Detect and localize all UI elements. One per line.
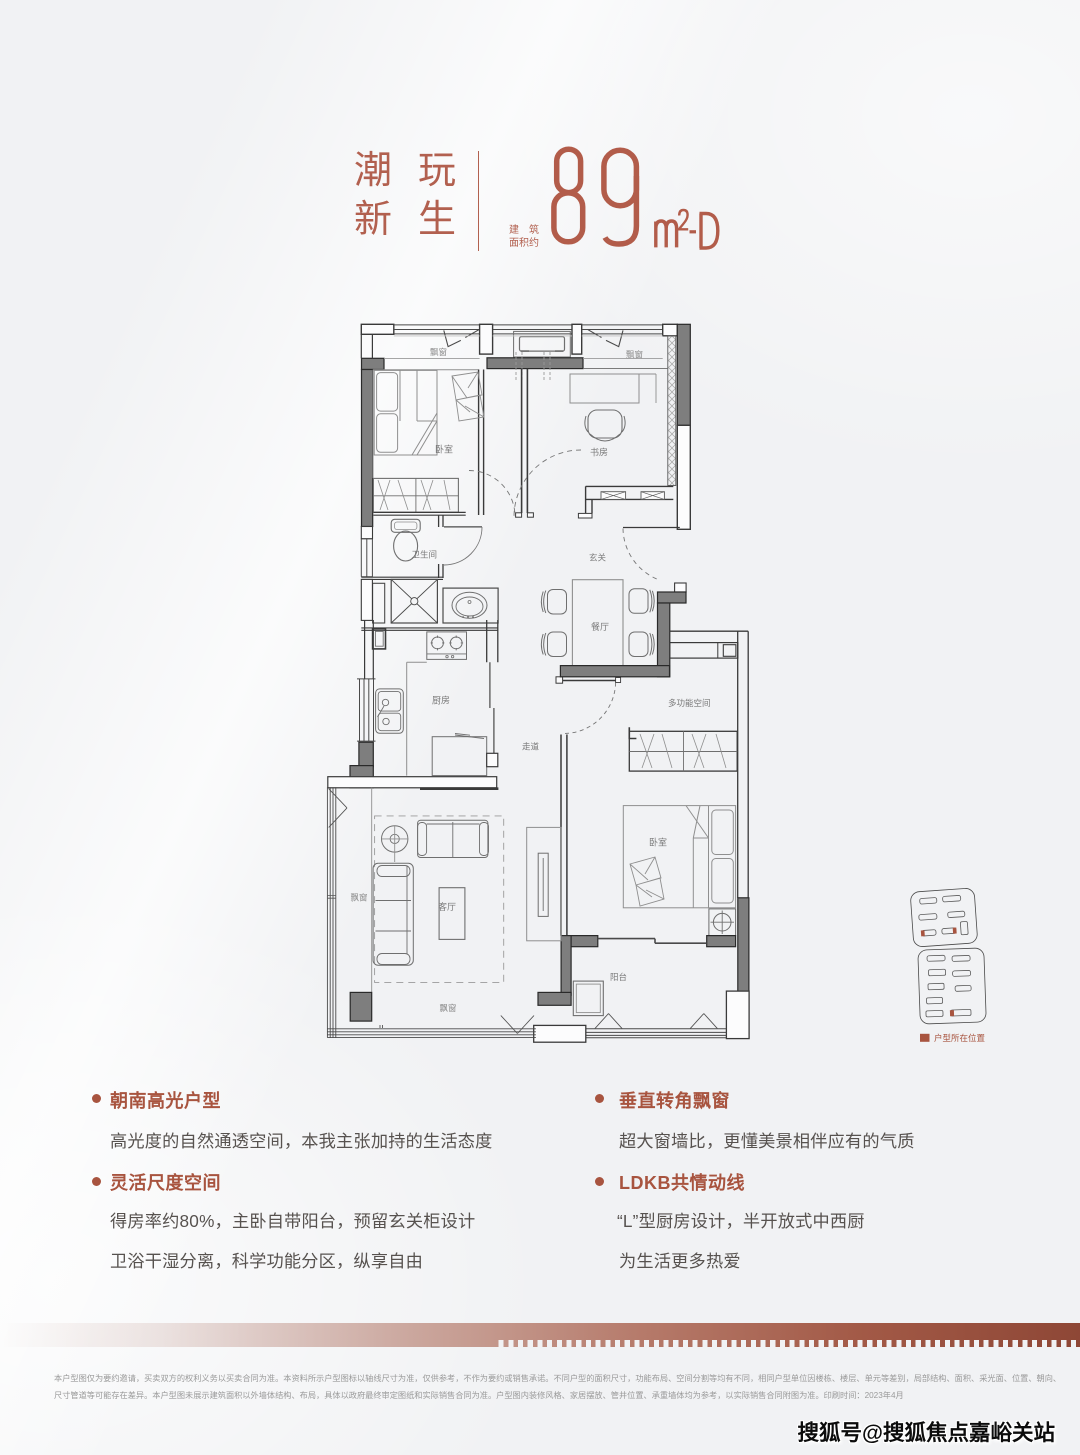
svg-text:户型所在位置: 户型所在位置 [934,1033,986,1043]
